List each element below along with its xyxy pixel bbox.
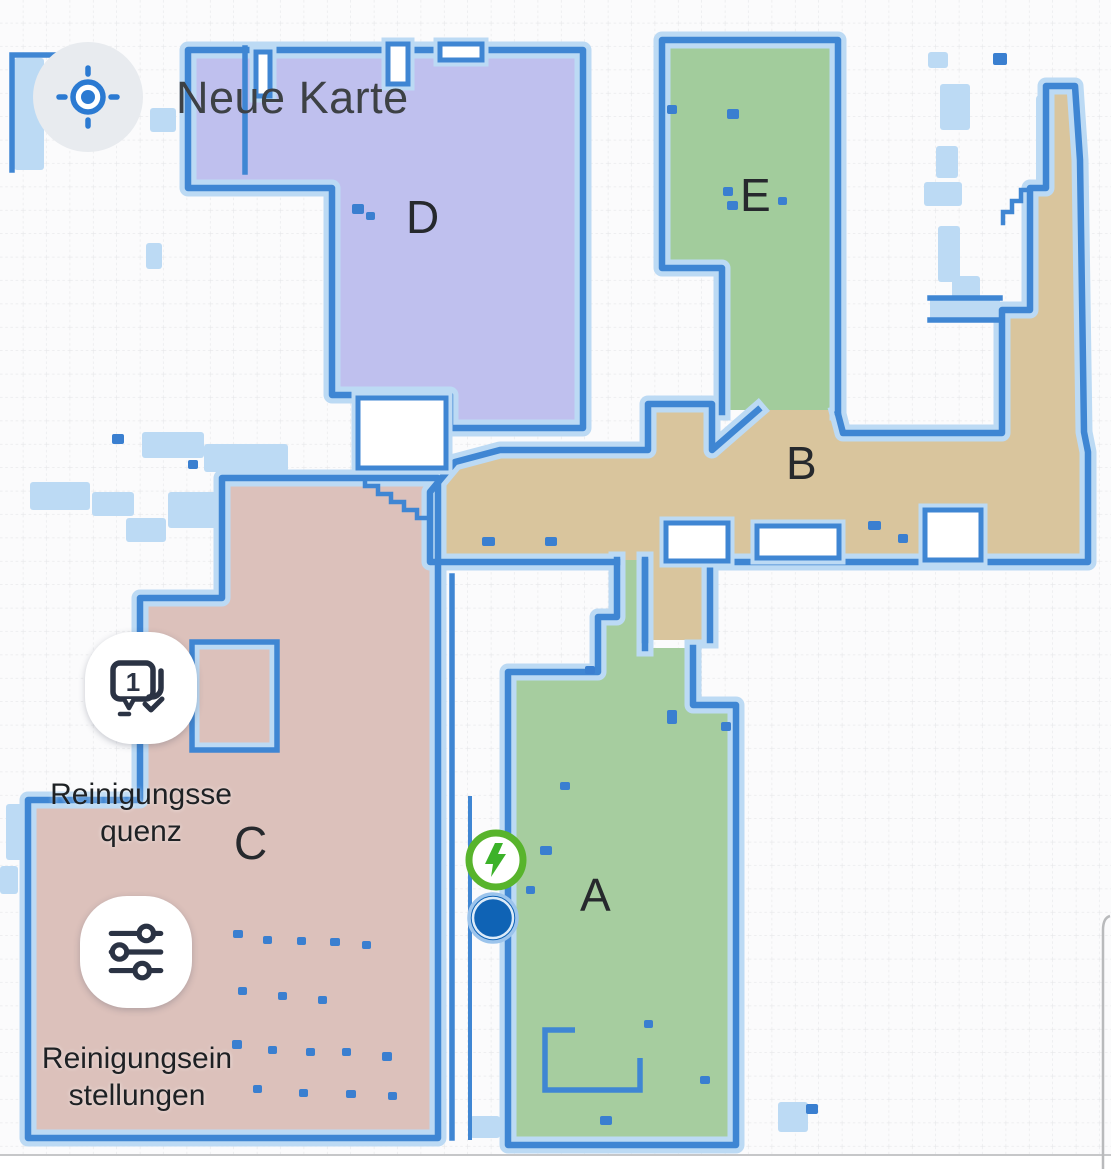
cleaning-settings-button[interactable] <box>80 896 192 1008</box>
room-label-D[interactable]: D <box>406 190 439 244</box>
locate-target-icon <box>53 62 123 132</box>
room-label-B[interactable]: B <box>786 436 817 490</box>
room-label-E[interactable]: E <box>740 168 771 222</box>
svg-text:1: 1 <box>126 667 140 697</box>
bottom-strip <box>0 1156 1111 1169</box>
map-title: Neue Karte <box>176 72 409 124</box>
locate-button[interactable] <box>33 42 143 152</box>
charging-dock-icon <box>464 828 528 892</box>
sliders-icon <box>103 919 169 985</box>
cleaning-settings-label: Reinigungsein stellungen <box>7 1040 267 1114</box>
robot-vacuum-map-screen: A B C D E Neue Karte 1 Reinigungsse quen… <box>0 0 1111 1169</box>
robot-position-icon <box>467 892 519 944</box>
cleaning-sequence-label: Reinigungsse quenz <box>11 776 271 850</box>
robot-position-marker <box>467 892 519 944</box>
charging-dock-marker <box>464 828 528 892</box>
cleaning-sequence-button[interactable]: 1 <box>85 632 197 744</box>
room-label-A[interactable]: A <box>580 868 611 922</box>
cleaning-sequence-icon: 1 <box>107 654 175 722</box>
